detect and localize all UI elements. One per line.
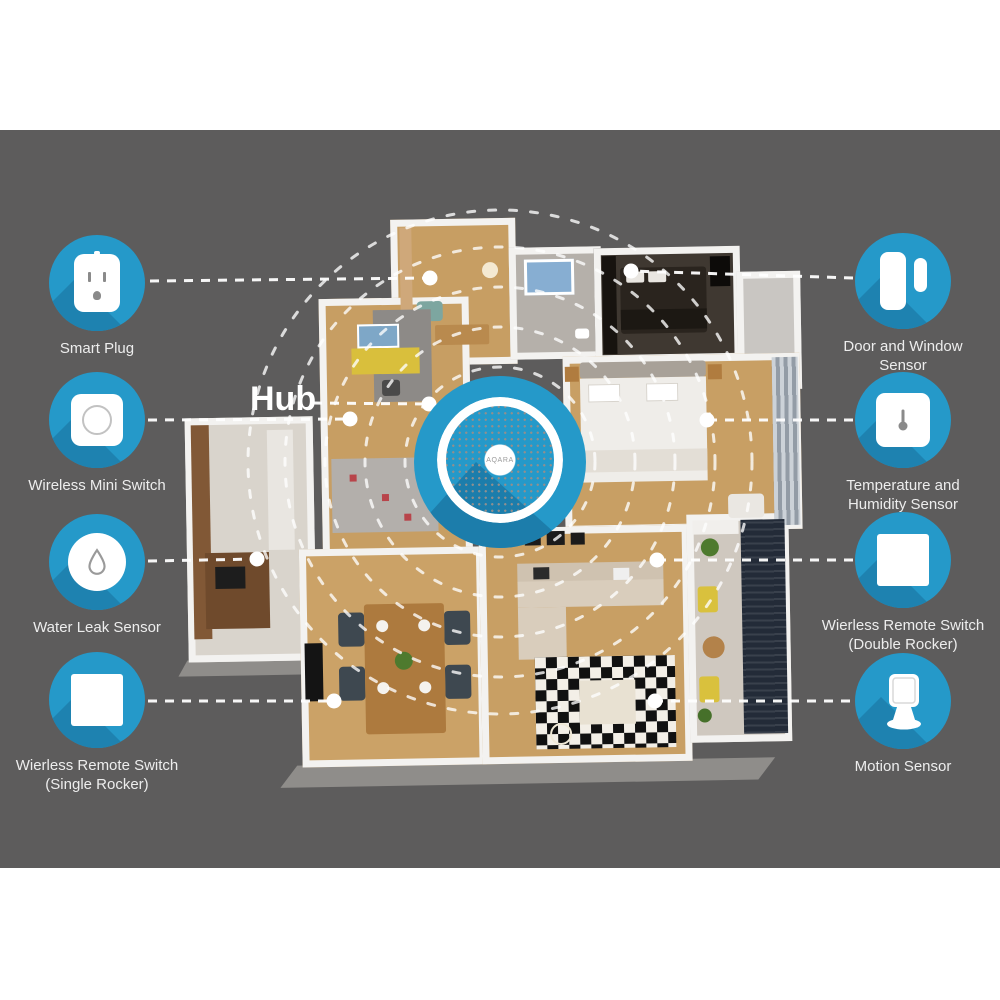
device-door-and-window-sensor: Door and WindowSensor	[808, 233, 998, 375]
bench	[728, 493, 764, 518]
device-smart-plug: Smart Plug	[2, 235, 192, 358]
device-label: Wireless Mini Switch	[28, 476, 166, 495]
bed-throw	[581, 448, 707, 472]
pillow	[648, 271, 666, 282]
square-rocker-icon	[855, 512, 951, 608]
motion-sensor-icon	[855, 653, 951, 749]
device-wireless-mini-switch: Wireless Mini Switch	[2, 372, 192, 495]
pillow	[646, 383, 678, 402]
skylight-window	[524, 259, 575, 296]
thermometer-icon	[855, 372, 951, 468]
device-circle	[855, 372, 951, 468]
desk-chair	[382, 380, 400, 396]
toilet	[575, 328, 589, 338]
window-curtain-band	[772, 357, 801, 525]
kitchen-counter	[205, 552, 270, 629]
device-motion-sensor: Motion Sensor	[808, 653, 998, 776]
device-wierless-remote-switch-double: Wierless Remote Switch(Double Rocker)	[808, 512, 998, 654]
lounge-chair	[698, 586, 718, 612]
device-circle	[49, 514, 145, 610]
device-label: Wierless Remote Switch(Double Rocker)	[822, 616, 985, 654]
curtain	[692, 520, 738, 535]
dining-chair	[339, 666, 366, 700]
square-rocker-icon	[49, 652, 145, 748]
hub-speaker-disc: AQARA	[437, 397, 563, 523]
slatted-screen	[740, 519, 788, 734]
device-circle	[49, 235, 145, 331]
fridge	[267, 430, 295, 550]
device-circle	[49, 652, 145, 748]
smart-plug-icon	[49, 235, 145, 331]
sofa-chaise	[518, 607, 567, 660]
pillow	[588, 384, 620, 403]
cushion	[533, 567, 549, 579]
window	[357, 324, 399, 349]
hub-label: Hub	[250, 380, 316, 419]
rug-accent	[382, 494, 389, 501]
hub-device: AQARA	[414, 376, 586, 548]
lounge-chair	[699, 676, 719, 702]
pillow	[626, 271, 644, 282]
wardrobe	[602, 256, 618, 354]
wall-art	[710, 256, 731, 286]
device-circle	[855, 512, 951, 608]
picture-frame	[571, 533, 585, 545]
water-drop-icon	[49, 514, 145, 610]
device-temperature-humidity-sensor: Temperature andHumidity Sensor	[808, 372, 998, 514]
device-label: Temperature andHumidity Sensor	[846, 476, 959, 514]
device-circle	[49, 372, 145, 468]
dining-chair	[445, 665, 472, 699]
door-window-icon	[855, 233, 951, 329]
tv-cabinet	[305, 643, 324, 701]
desk	[435, 324, 489, 345]
hub-logo-text: AQARA	[486, 457, 514, 464]
cushion	[613, 568, 629, 580]
sofa-seat	[517, 579, 663, 608]
device-label: Motion Sensor	[855, 757, 952, 776]
device-wierless-remote-switch-single: Wierless Remote Switch(Single Rocker)	[2, 652, 192, 794]
device-label: Door and WindowSensor	[843, 337, 962, 375]
rug-accent	[404, 514, 411, 521]
dining-chair	[444, 611, 471, 645]
round-button-icon	[49, 372, 145, 468]
dining-chair	[338, 612, 365, 646]
device-label: Wierless Remote Switch(Single Rocker)	[16, 756, 179, 794]
device-label: Water Leak Sensor	[33, 618, 161, 637]
nightstand	[708, 364, 722, 379]
stove	[215, 566, 245, 589]
study-desk	[351, 347, 419, 374]
nightstand	[565, 367, 579, 382]
blanket	[621, 308, 707, 329]
device-circle	[855, 233, 951, 329]
device-water-leak-sensor: Water Leak Sensor	[2, 514, 192, 637]
device-label: Smart Plug	[60, 339, 134, 358]
device-circle	[855, 653, 951, 749]
rug-accent	[350, 475, 357, 482]
coffee-table	[579, 680, 636, 725]
